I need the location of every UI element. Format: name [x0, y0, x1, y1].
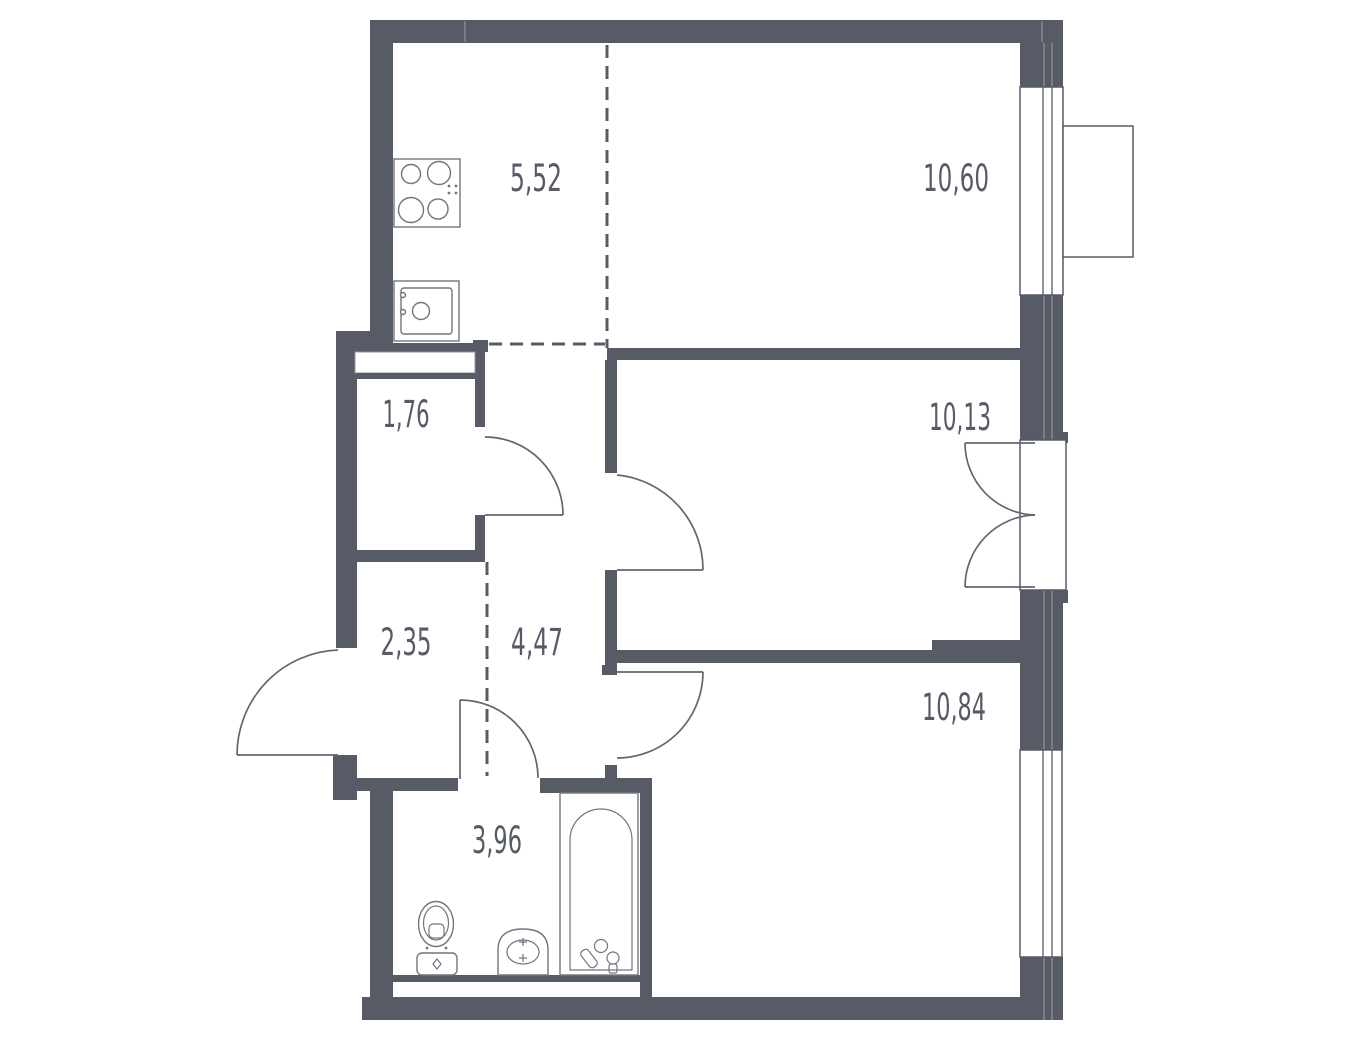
storage-bottom-wall — [336, 550, 485, 562]
windows — [1020, 87, 1133, 957]
washbasin-icon — [498, 929, 548, 975]
bedroom-door-icon — [617, 475, 703, 570]
room-label-entry-hall: 2,35 — [381, 621, 432, 664]
bedroom2-window-icon — [1020, 750, 1062, 957]
right-wall-seg-4 — [1020, 957, 1063, 1020]
bathroom-top-wall-left — [357, 778, 458, 791]
rooms-divider-wall — [607, 348, 1020, 360]
balcony-ledge-bottom — [1052, 590, 1068, 603]
bathroom-door-icon — [460, 700, 538, 779]
hall-wall-lower — [605, 570, 617, 675]
bottom-wall — [362, 997, 1063, 1020]
hall-wall-upper — [605, 360, 617, 473]
storage-corner-block — [473, 340, 488, 352]
bedroom2-door-icon — [617, 672, 703, 758]
stove-icon — [394, 159, 460, 227]
kitchen-left-wall — [370, 43, 393, 343]
storage-top-wall — [336, 343, 485, 352]
entrance-door-icon — [237, 650, 338, 755]
bathroom-left-wall — [370, 790, 393, 1020]
right-wall-seg-3 — [1020, 590, 1063, 750]
room-label-corridor: 4,47 — [511, 621, 563, 664]
bathroom-door-jamb-stub — [605, 765, 617, 780]
storage-door-icon — [485, 437, 563, 515]
living-room-window-icon — [1020, 87, 1063, 295]
room-labels: 5,52 10,60 1,76 10,13 2,35 4,47 10,84 3,… — [381, 157, 992, 862]
left-wall-upper — [336, 331, 357, 648]
room-label-kitchen: 5,52 — [510, 157, 562, 200]
bedroom2-top-wall-thin — [617, 650, 932, 663]
right-wall-seg-2 — [1020, 295, 1063, 443]
top-wall — [370, 20, 1063, 43]
left-wall-lower — [333, 755, 357, 800]
right-wall-seg-1 — [1020, 43, 1063, 87]
bathroom-bottom-line — [393, 975, 640, 982]
hall-wall-cap — [602, 665, 617, 675]
balcony-basket-icon — [1063, 126, 1133, 257]
bathroom-top-wall-right — [540, 778, 652, 793]
room-label-living-room: 10,60 — [923, 157, 989, 200]
storage-shelf — [355, 352, 475, 379]
shelf-edge — [355, 373, 475, 379]
storage-right-wall-a — [475, 352, 485, 427]
room-label-bathroom: 3,96 — [472, 819, 522, 862]
room-label-storage: 1,76 — [383, 393, 430, 436]
bedroom2-top-wall-thick — [932, 640, 1020, 663]
kitchen-sink-icon — [394, 281, 459, 341]
floor-plan-svg: 5,52 10,60 1,76 10,13 2,35 4,47 10,84 3,… — [0, 0, 1372, 1040]
toilet-icon — [417, 902, 457, 976]
bathroom-right-wall — [640, 790, 652, 997]
floor-plan-page: 5,52 10,60 1,76 10,13 2,35 4,47 10,84 3,… — [0, 0, 1372, 1040]
room-label-bedroom-2: 10,84 — [922, 686, 986, 729]
zone-boundaries — [487, 45, 607, 776]
shelf-icon — [355, 352, 475, 373]
bathtub-icon — [560, 793, 638, 975]
room-label-bedroom: 10,13 — [929, 396, 991, 439]
